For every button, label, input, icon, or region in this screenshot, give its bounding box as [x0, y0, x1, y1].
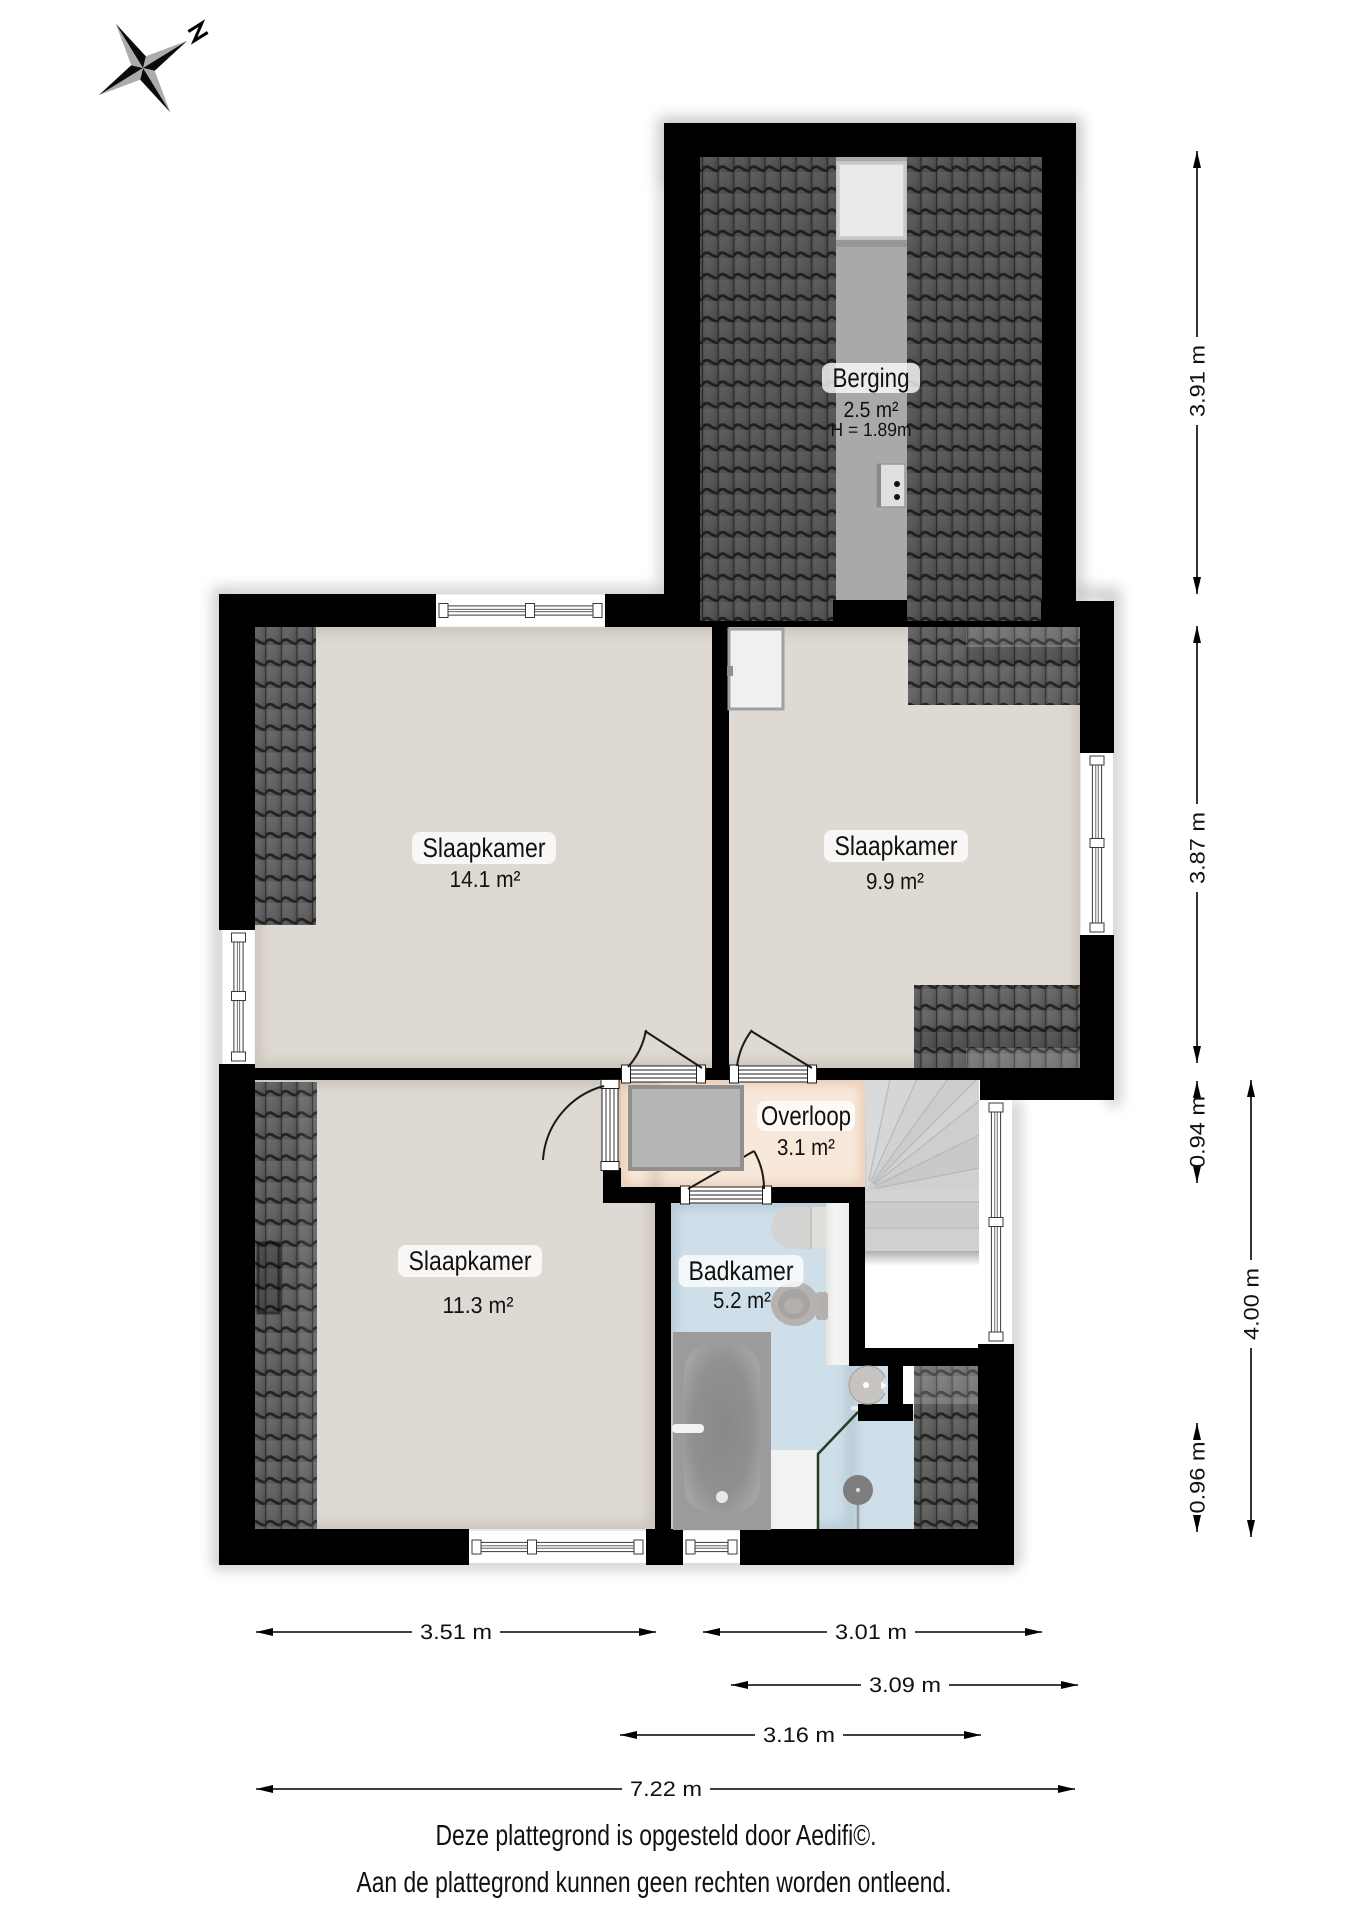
svg-text:Slaapkamer: Slaapkamer [423, 833, 546, 863]
svg-text:Overloop: Overloop [761, 1101, 851, 1131]
svg-text:0.94 m: 0.94 m [1187, 1096, 1210, 1168]
svg-text:7.22 m: 7.22 m [630, 1778, 702, 1801]
svg-text:3.1 m²: 3.1 m² [777, 1134, 835, 1160]
svg-text:3.01 m: 3.01 m [835, 1621, 907, 1644]
svg-text:Berging: Berging [833, 363, 910, 393]
svg-text:2.5 m²: 2.5 m² [844, 397, 899, 422]
svg-text:Aan de plattegrond kunnen geen: Aan de plattegrond kunnen geen rechten w… [357, 1867, 952, 1899]
svg-text:3.51 m: 3.51 m [420, 1621, 492, 1644]
svg-text:9.9 m²: 9.9 m² [866, 868, 924, 894]
svg-text:H = 1.89m: H = 1.89m [831, 420, 912, 441]
svg-text:3.87 m: 3.87 m [1187, 812, 1210, 884]
svg-text:3.16 m: 3.16 m [763, 1724, 835, 1747]
svg-text:14.1 m²: 14.1 m² [450, 866, 521, 892]
svg-text:Slaapkamer: Slaapkamer [409, 1246, 532, 1276]
svg-text:Badkamer: Badkamer [689, 1256, 794, 1286]
svg-text:Slaapkamer: Slaapkamer [835, 831, 958, 861]
svg-text:Deze plattegrond is opgesteld: Deze plattegrond is opgesteld door Aedif… [436, 1820, 877, 1852]
svg-text:3.91 m: 3.91 m [1187, 345, 1210, 417]
svg-text:5.2 m²: 5.2 m² [713, 1287, 771, 1313]
svg-text:11.3 m²: 11.3 m² [443, 1292, 514, 1318]
svg-text:4.00 m: 4.00 m [1241, 1268, 1264, 1340]
svg-text:0.96 m: 0.96 m [1187, 1442, 1210, 1514]
svg-text:3.09 m: 3.09 m [869, 1674, 941, 1697]
